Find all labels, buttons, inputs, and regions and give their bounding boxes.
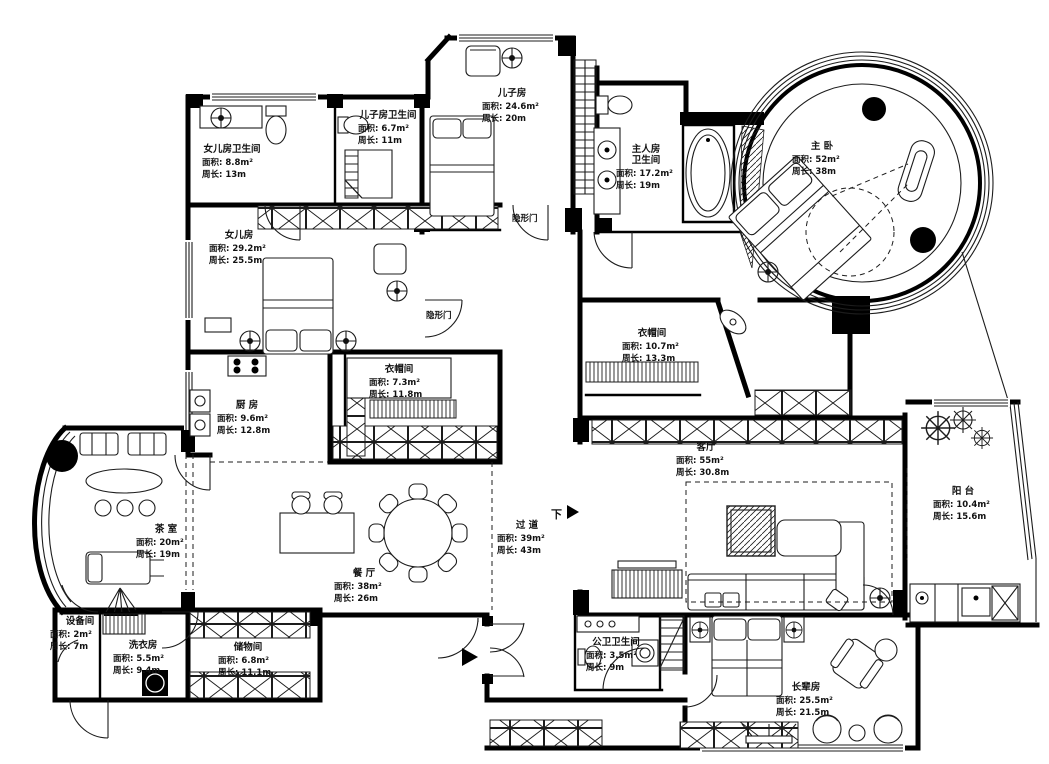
room-label-balcony: 阳 台面积: 10.4m²周长: 15.6m [933, 485, 990, 522]
room-name: 衣帽间 [385, 363, 414, 375]
room-perimeter: 周长: 11.8m [369, 389, 422, 400]
room-label-kitchen: 厨 房面积: 9.6m²周长: 12.8m [217, 399, 270, 436]
room-area: 面积: 7.3m² [369, 377, 420, 388]
room-label-daughter-bathroom: 女儿房卫生间面积: 8.8m²周长: 13m [202, 143, 261, 180]
annotation-stairs-down: 下 [551, 508, 562, 521]
room-label-tea-room: 茶 室面积: 20m²周长: 19m [136, 523, 184, 560]
room-area: 面积: 6.7m² [358, 123, 409, 134]
room-perimeter: 周长: 7m [50, 641, 88, 652]
room-name: 洗衣房 [129, 639, 158, 651]
room-area: 面积: 6.8m² [218, 655, 269, 666]
room-label-storage-room: 储物间面积: 6.8m²周长: 11.1m [218, 641, 271, 678]
room-name: 儿子房卫生间 [358, 109, 416, 121]
room-perimeter: 周长: 20m [482, 113, 526, 124]
room-perimeter: 周长: 13m [202, 169, 246, 180]
room-perimeter: 周长: 19m [136, 549, 180, 560]
room-name: 茶 室 [154, 523, 178, 535]
room-label-dining-room: 餐 厅面积: 38m²周长: 26m [334, 567, 382, 604]
room-perimeter: 周长: 13.3m [622, 353, 675, 364]
room-name: 卫生间 [632, 154, 661, 166]
room-area: 面积: 17.2m² [616, 168, 673, 179]
room-label-corridor: 过 道面积: 39m²周长: 43m [497, 519, 545, 556]
room-area: 面积: 24.6m² [482, 101, 539, 112]
room-perimeter: 周长: 9.4m [113, 665, 160, 676]
room-perimeter: 周长: 11.1m [218, 667, 271, 678]
entry-arrow-icon [462, 648, 478, 666]
room-perimeter: 周长: 26m [334, 593, 378, 604]
room-area: 面积: 39m² [497, 533, 545, 544]
room-area: 面积: 5.5m² [113, 653, 164, 664]
room-area: 面积: 8.8m² [202, 157, 253, 168]
room-perimeter: 周长: 19m [616, 180, 660, 191]
room-area: 面积: 9.6m² [217, 413, 268, 424]
room-perimeter: 周长: 21.5m [776, 707, 829, 718]
room-name: 衣帽间 [638, 327, 667, 339]
room-area: 面积: 2m² [50, 629, 92, 640]
room-name: 长辈房 [792, 681, 821, 693]
room-area: 面积: 10.4m² [933, 499, 990, 510]
room-perimeter: 周长: 30.8m [676, 467, 729, 478]
room-area: 面积: 3.5m² [586, 650, 637, 661]
room-name: 主人房 [632, 143, 661, 155]
room-label-master-bathroom: 主人房卫生间面积: 17.2m²周长: 19m [616, 143, 673, 191]
kitchen-fixtures [190, 356, 266, 436]
room-label-master-bedroom: 主 卧面积: 52m²周长: 38m [792, 140, 840, 177]
room-area: 面积: 38m² [334, 581, 382, 592]
room-label-son-bathroom: 儿子房卫生间面积: 6.7m²周长: 11m [358, 109, 417, 146]
room-perimeter: 周长: 38m [792, 166, 836, 177]
room-name: 儿子房 [497, 87, 527, 99]
room-name: 客厅 [695, 441, 716, 453]
room-label-laundry-room: 洗衣房面积: 5.5m²周长: 9.4m [113, 639, 164, 676]
tea-room-furniture [80, 433, 166, 616]
room-area: 面积: 52m² [792, 154, 840, 165]
daughter-bathroom-fixtures [200, 106, 286, 144]
room-perimeter: 周长: 11m [358, 135, 402, 146]
room-perimeter: 周长: 15.6m [933, 511, 986, 522]
room-label-elder-room: 长辈房面积: 25.5m²周长: 21.5m [776, 681, 833, 718]
room-perimeter: 周长: 9m [586, 662, 624, 673]
room-name: 过 道 [516, 519, 539, 531]
room-label-cloakroom-master: 衣帽间面积: 10.7m²周长: 13.3m [622, 327, 679, 364]
room-perimeter: 周长: 25.5m [209, 255, 262, 266]
room-name: 主 卧 [811, 140, 834, 152]
son-room-furniture [430, 46, 522, 216]
room-name: 设备间 [66, 615, 95, 627]
floor-plan-canvas: 女儿房卫生间面积: 8.8m²周长: 13m儿子房卫生间面积: 6.7m²周长:… [0, 0, 1049, 764]
room-name: 女儿房 [225, 229, 254, 241]
room-perimeter: 周长: 12.8m [217, 425, 270, 436]
room-name: 女儿房卫生间 [203, 143, 260, 155]
room-area: 面积: 25.5m² [776, 695, 833, 706]
living-room-furniture [612, 506, 890, 612]
annotation-hidden-door-west: 隐形门 [426, 310, 452, 321]
room-area: 面积: 20m² [136, 537, 184, 548]
room-name: 公卫卫生间 [592, 636, 640, 648]
room-name: 餐 厅 [352, 567, 376, 579]
room-name: 储物间 [234, 641, 263, 653]
room-label-public-bathroom: 公卫卫生间面积: 3.5m²周长: 9m [586, 636, 640, 673]
room-perimeter: 周长: 43m [497, 545, 541, 556]
annotation-hidden-door-north: 隐形门 [512, 213, 538, 224]
room-label-son-room: 儿子房面积: 24.6m²周长: 20m [482, 87, 539, 124]
room-name: 厨 房 [236, 399, 258, 411]
room-label-daughter-room: 女儿房面积: 29.2m²周长: 25.5m [209, 229, 266, 266]
room-area: 面积: 29.2m² [209, 243, 266, 254]
room-area: 面积: 10.7m² [622, 341, 679, 352]
room-label-living-room: 客厅面积: 55m²周长: 30.8m [676, 441, 729, 478]
room-name: 阳 台 [952, 485, 975, 497]
down-arrow-icon [567, 505, 579, 519]
room-area: 面积: 55m² [676, 455, 724, 466]
